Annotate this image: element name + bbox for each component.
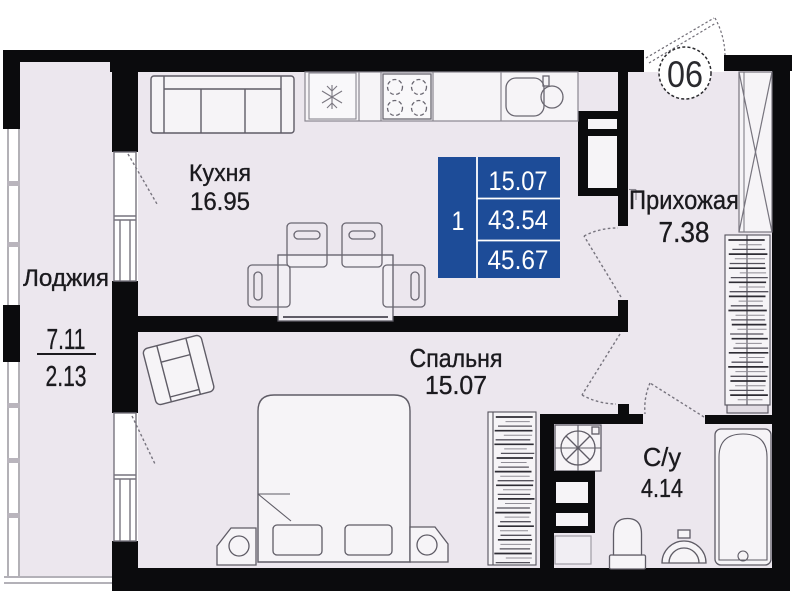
svg-text:7.11: 7.11	[47, 324, 86, 356]
svg-text:Кухня: Кухня	[189, 160, 251, 187]
svg-text:1: 1	[452, 206, 465, 236]
svg-text:45.67: 45.67	[488, 245, 549, 275]
svg-text:7.38: 7.38	[659, 217, 710, 249]
svg-text:15.07: 15.07	[489, 166, 548, 196]
svg-text:С/у: С/у	[643, 442, 681, 472]
svg-text:Спальня: Спальня	[410, 343, 503, 373]
svg-text:Лоджия: Лоджия	[23, 265, 109, 292]
svg-text:2.13: 2.13	[46, 361, 87, 393]
svg-text:Прихожая: Прихожая	[629, 185, 739, 215]
svg-text:15.07: 15.07	[425, 370, 487, 400]
svg-text:4.14: 4.14	[641, 473, 683, 503]
svg-text:16.95: 16.95	[190, 188, 250, 216]
svg-text:43.54: 43.54	[488, 205, 548, 235]
svg-text:06: 06	[667, 54, 703, 95]
